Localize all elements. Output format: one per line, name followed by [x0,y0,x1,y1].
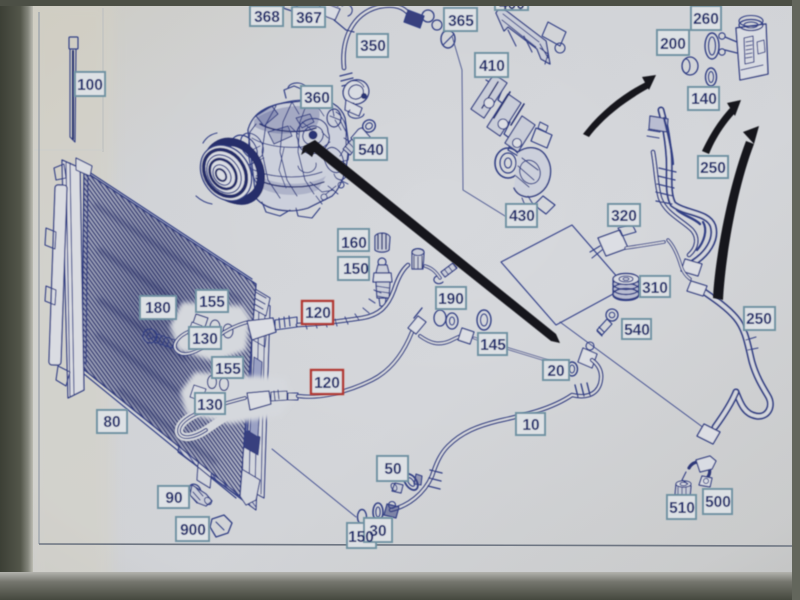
svg-text:130: 130 [197,397,223,414]
svg-text:410: 410 [479,58,505,75]
svg-text:50: 50 [384,461,401,478]
svg-text:350: 350 [360,38,386,55]
svg-text:200: 200 [660,36,686,53]
svg-text:160: 160 [341,235,367,252]
svg-text:140: 140 [691,91,717,108]
svg-text:155: 155 [215,361,241,378]
svg-text:130: 130 [192,331,218,348]
svg-text:20: 20 [547,363,564,380]
svg-text:190: 190 [438,291,464,308]
svg-text:360: 360 [304,90,330,107]
svg-text:500: 500 [705,494,731,511]
svg-text:900: 900 [180,522,206,539]
svg-text:260: 260 [693,11,719,28]
svg-text:90: 90 [165,490,182,507]
svg-text:320: 320 [611,208,637,225]
svg-text:365: 365 [448,13,474,30]
svg-text:30: 30 [369,523,386,540]
svg-text:250: 250 [700,160,726,177]
svg-text:540: 540 [624,322,650,339]
svg-text:180: 180 [145,300,171,317]
svg-text:368: 368 [254,9,280,26]
svg-text:155: 155 [199,294,225,311]
svg-text:510: 510 [669,500,695,517]
svg-text:367: 367 [296,10,322,27]
svg-text:120: 120 [305,305,331,322]
svg-text:145: 145 [480,337,506,354]
svg-text:250: 250 [746,311,772,328]
svg-text:120: 120 [314,375,340,392]
svg-text:310: 310 [642,280,668,297]
svg-text:150: 150 [343,261,369,278]
svg-text:10: 10 [522,417,539,434]
svg-text:430: 430 [509,208,535,225]
svg-text:100: 100 [77,77,103,94]
svg-text:540: 540 [358,142,384,159]
svg-text:80: 80 [103,414,120,431]
